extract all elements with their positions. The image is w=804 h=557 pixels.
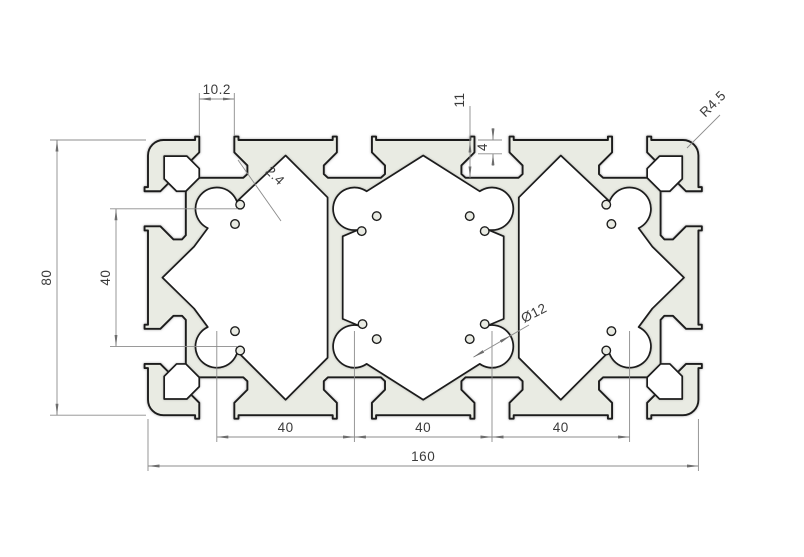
dim-vertical-pitch: 40 — [98, 270, 113, 286]
profile-drawing: 10.2 2.4 11 4 R4.5 80 40 Ø12 40 40 40 16… — [0, 0, 804, 557]
dim-slot-depth: 11 — [452, 92, 467, 107]
dim-slot-opening-width: 10.2 — [203, 82, 231, 97]
dim-overall-height: 80 — [39, 270, 54, 286]
dim-corner-radius: R4.5 — [697, 88, 729, 120]
dim-bottom-pitch-1: 40 — [278, 420, 294, 435]
dim-overall-width: 160 — [411, 449, 435, 464]
cavity-center — [333, 155, 513, 399]
dim-slot-lip-height: 4 — [475, 143, 490, 151]
dim-bottom-pitch-3: 40 — [553, 420, 569, 435]
drawing-canvas: 10.2 2.4 11 4 R4.5 80 40 Ø12 40 40 40 16… — [0, 0, 804, 557]
extrusion-profile — [145, 137, 702, 419]
dim-bottom-pitch-2: 40 — [415, 420, 431, 435]
